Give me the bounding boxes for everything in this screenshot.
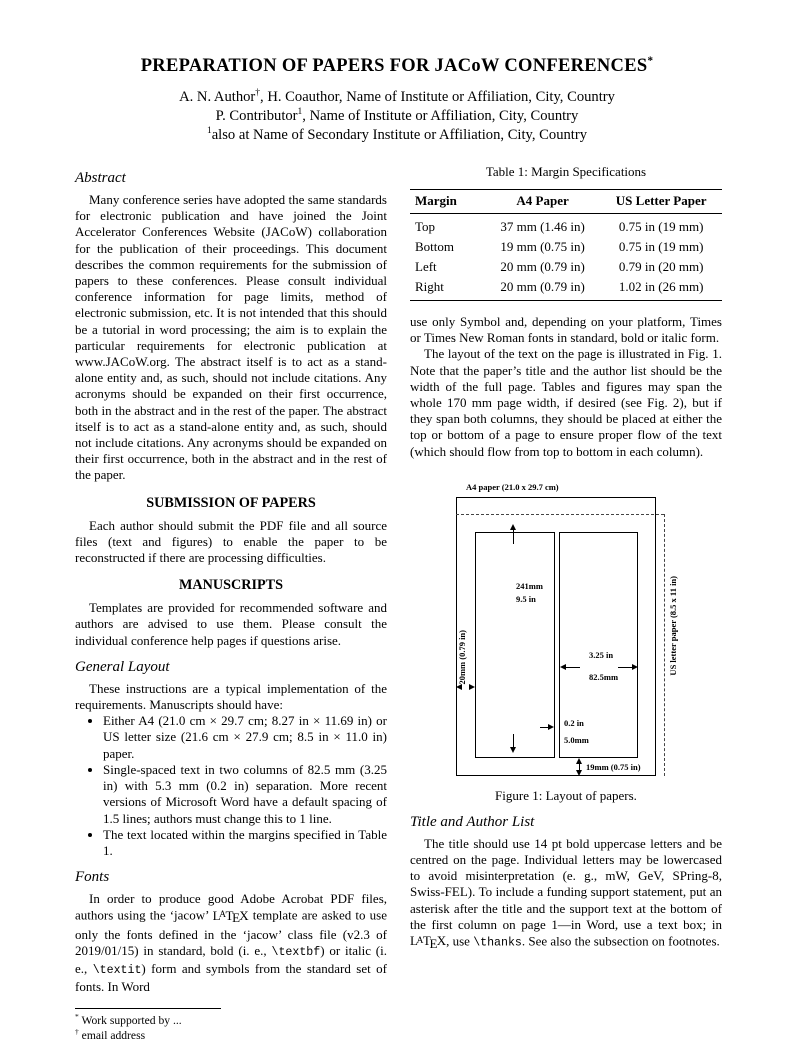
a4-paper-label: A4 paper (21.0 x 29.7 cm)	[466, 482, 559, 492]
table-cell: Right	[410, 277, 485, 301]
latex-command: \textit	[93, 964, 142, 977]
column-gap-label: 5.0mm	[564, 735, 589, 745]
figure-caption: Figure 1: Layout of papers.	[410, 788, 722, 804]
title-footnote-marker: *	[647, 55, 653, 67]
left-margin-label: 20mm (0.79 in)	[457, 630, 467, 685]
table-header-cell: Margin	[410, 190, 485, 214]
arrow-down-icon	[576, 770, 582, 776]
latex-logo: LATEX	[410, 933, 446, 948]
figure-diagram: A4 paper (21.0 x 29.7 cm) 241mm 9.5 in 2…	[456, 484, 682, 780]
latex-logo: LATEX	[213, 908, 249, 923]
arrow-down-icon	[510, 747, 516, 753]
latex-command: \thanks	[473, 936, 522, 949]
fonts-heading: Fonts	[75, 869, 387, 886]
footnote-item: * Work supported by ...	[75, 1013, 387, 1028]
us-letter-label: US letter paper (8.5 x 11 in)	[668, 576, 678, 676]
table-cell: 1.02 in (26 mm)	[600, 277, 722, 301]
paper-title-text: PREPARATION OF PAPERS FOR JACoW CONFEREN…	[141, 56, 648, 76]
us-letter-outline-right	[664, 514, 665, 776]
table-row: Left 20 mm (0.79 in) 0.79 in (20 mm)	[410, 257, 722, 277]
author-list: A. N. Author†, H. Coauthor, Name of Inst…	[0, 88, 794, 145]
dimension-line	[540, 727, 548, 728]
author-line: P. Contributor1, Name of Institute or Af…	[0, 107, 794, 126]
table-cell: Top	[410, 214, 485, 238]
table-cell: 20 mm (0.79 in)	[485, 277, 600, 301]
abstract-text: Many conference series have adopted the …	[75, 192, 387, 484]
author-line: 1also at Name of Secondary Institute or …	[0, 126, 794, 145]
text-column-left	[475, 532, 555, 758]
column-gap-label: 0.2 in	[564, 718, 584, 728]
table-header-row: Margin A4 Paper US Letter Paper	[410, 190, 722, 214]
footnote-rule	[75, 1008, 221, 1009]
author-line: A. N. Author†, H. Coauthor, Name of Inst…	[0, 88, 794, 107]
arrow-right-icon	[548, 724, 554, 730]
table-header-cell: A4 Paper	[485, 190, 600, 214]
body-paragraph: use only Symbol and, depending on your p…	[410, 314, 722, 346]
table-cell: 0.75 in (19 mm)	[600, 214, 722, 238]
column-width-label: 82.5mm	[589, 672, 618, 682]
table-cell: Left	[410, 257, 485, 277]
submission-heading: SUBMISSION OF PAPERS	[75, 495, 387, 512]
list-item: The text located within the margins spec…	[103, 827, 387, 859]
arrow-left-icon	[456, 684, 462, 690]
column-height-label: 9.5 in	[516, 594, 536, 604]
table-row: Bottom 19 mm (0.75 in) 0.75 in (19 mm)	[410, 237, 722, 257]
footnotes: * Work supported by ... † email address	[75, 1008, 387, 1043]
column-height-label: 241mm	[516, 581, 543, 591]
general-layout-heading: General Layout	[75, 659, 387, 676]
arrow-right-icon	[632, 664, 638, 670]
list-item: Either A4 (21.0 cm × 29.7 cm; 8.27 in × …	[103, 713, 387, 762]
table-cell: 19 mm (0.75 in)	[485, 237, 600, 257]
table-row: Top 37 mm (1.46 in) 0.75 in (19 mm)	[410, 214, 722, 238]
right-column: Table 1: Margin Specifications Margin A4…	[410, 160, 722, 1043]
latex-command: \textbf	[271, 946, 320, 959]
table-cell: 0.75 in (19 mm)	[600, 237, 722, 257]
document-page: PREPARATION OF PAPERS FOR JACoW CONFEREN…	[0, 0, 794, 1057]
body-paragraph: The layout of the text on the page is il…	[410, 346, 722, 459]
title-author-list-heading: Title and Author List	[410, 814, 722, 831]
table-cell: 37 mm (1.46 in)	[485, 214, 600, 238]
fonts-text: In order to produce good Adobe Acrobat P…	[75, 891, 387, 995]
dimension-line	[566, 667, 580, 668]
table-caption: Table 1: Margin Specifications	[410, 164, 722, 180]
dimension-line	[513, 734, 514, 747]
paper-title: PREPARATION OF PAPERS FOR JACoW CONFEREN…	[0, 56, 794, 77]
table-row: Right 20 mm (0.79 in) 1.02 in (26 mm)	[410, 277, 722, 301]
general-layout-intro: These instructions are a typical impleme…	[75, 681, 387, 713]
requirements-list: Either A4 (21.0 cm × 29.7 cm; 8.27 in × …	[75, 713, 387, 859]
table-cell: 0.79 in (20 mm)	[600, 257, 722, 277]
bottom-margin-label: 19mm (0.75 in)	[586, 762, 641, 772]
abstract-heading: Abstract	[75, 170, 387, 187]
table-cell: Bottom	[410, 237, 485, 257]
us-letter-outline-top	[456, 514, 664, 515]
manuscripts-text: Templates are provided for recommended s…	[75, 600, 387, 649]
dimension-line	[618, 667, 632, 668]
arrow-right-icon	[469, 684, 475, 690]
table-header-cell: US Letter Paper	[600, 190, 722, 214]
two-column-body: Abstract Many conference series have ado…	[75, 160, 722, 1043]
manuscripts-heading: MANUSCRIPTS	[75, 577, 387, 594]
margin-table: Margin A4 Paper US Letter Paper Top 37 m…	[410, 189, 722, 301]
paper-header: PREPARATION OF PAPERS FOR JACoW CONFEREN…	[0, 0, 794, 145]
submission-text: Each author should submit the PDF file a…	[75, 518, 387, 567]
title-author-list-text: The title should use 14 pt bold uppercas…	[410, 836, 722, 952]
column-width-label: 3.25 in	[589, 650, 613, 660]
list-item: Single-spaced text in two columns of 82.…	[103, 762, 387, 827]
table-cell: 20 mm (0.79 in)	[485, 257, 600, 277]
left-column: Abstract Many conference series have ado…	[75, 160, 387, 1043]
footnote-item: † email address	[75, 1028, 387, 1043]
dimension-line	[513, 530, 514, 544]
